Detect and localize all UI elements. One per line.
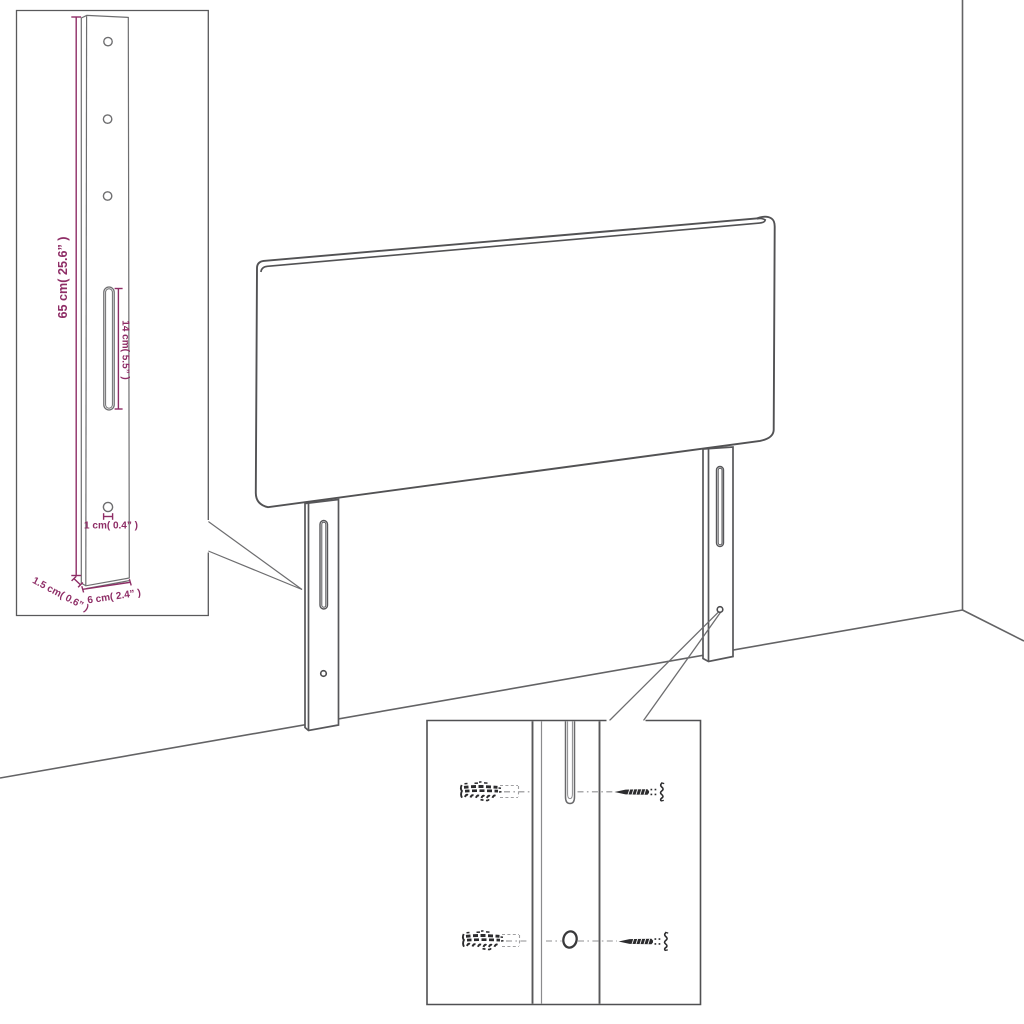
svg-text:1 cm( 0.4” ): 1 cm( 0.4” )	[84, 521, 138, 532]
svg-text:65 cm( 25.6” ): 65 cm( 25.6” )	[56, 237, 70, 319]
svg-text:14 cm( 5.5” ): 14 cm( 5.5” )	[120, 320, 131, 379]
